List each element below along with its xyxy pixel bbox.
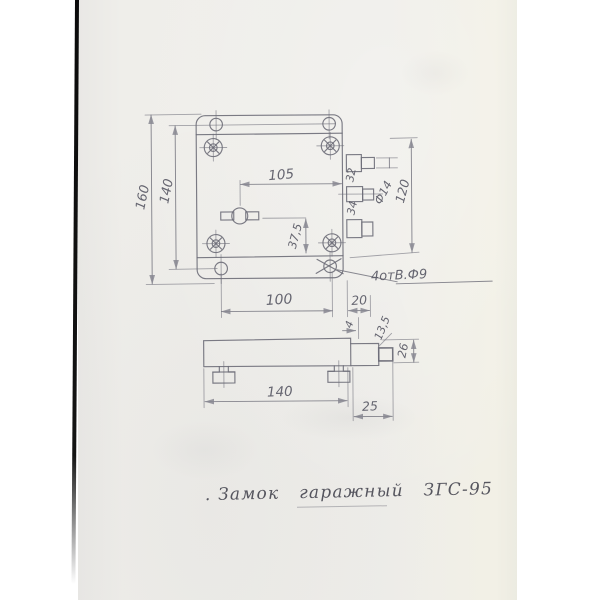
dim-body-length: 140 — [267, 384, 293, 401]
latch-tip-side — [379, 348, 393, 361]
bolt-head — [318, 229, 345, 256]
hole-strike-mark — [316, 259, 343, 274]
dim-end-height: 26 — [394, 342, 411, 359]
front-view — [169, 110, 346, 284]
side-view-dimensions: 4 13,5 26 140 25 — [203, 314, 419, 422]
dim-keyhole-offset: 105 — [268, 166, 295, 184]
bolt-head — [317, 132, 344, 159]
dim-hole-row-spacing: 140 — [157, 178, 177, 205]
dim-latch-pitch-upper: 32 — [343, 167, 359, 183]
lock-body-side — [204, 338, 351, 367]
note-mount-holes: 4отВ.Ф9 — [371, 267, 428, 284]
dim-overall-height: 160 — [133, 184, 153, 211]
side-view — [204, 338, 393, 388]
dim-latch-span: 120 — [392, 178, 413, 205]
dim-step-drop: 13,5 — [372, 314, 393, 342]
scanned-page: 160 140 105 37,5 100 — [0, 0, 600, 600]
dim-edge-to-latch: 20 — [351, 292, 368, 308]
dim-keyhole-drop: 37,5 — [285, 222, 305, 250]
mount-bolt-side — [213, 361, 235, 387]
dim-latch-projection: 25 — [362, 398, 379, 414]
drawing-caption: . Замок гаражный ЗГС-95 — [205, 479, 506, 515]
dim-step-offset: 4 — [343, 319, 357, 329]
dim-latch-diameter: Ф14 — [371, 178, 395, 206]
dim-latch-pitch-lower: 34 — [345, 200, 361, 216]
drawing-content: 160 140 105 37,5 100 — [133, 109, 494, 422]
dim-hole-col-spacing: 100 — [265, 291, 293, 309]
keyhole — [221, 208, 259, 224]
lock-plate-outline — [196, 115, 343, 279]
bolt-head — [200, 134, 227, 161]
front-view-dimensions: 160 140 105 37,5 100 — [133, 112, 493, 318]
bolt-head — [202, 230, 229, 257]
mount-bolt-side — [328, 361, 350, 387]
